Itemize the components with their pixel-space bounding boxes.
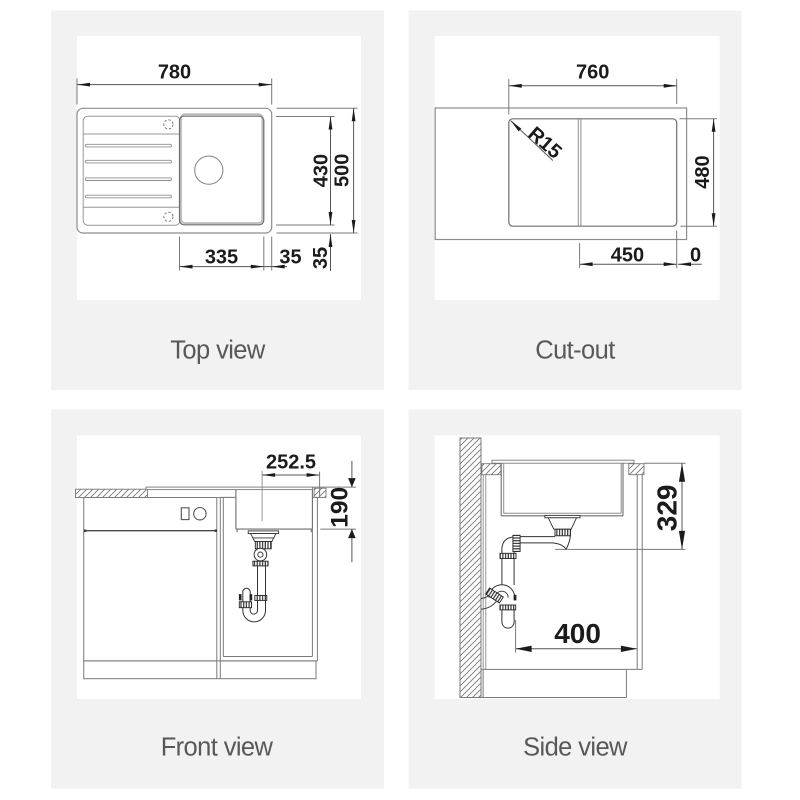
svg-text:760: 760 xyxy=(576,62,609,84)
svg-text:35: 35 xyxy=(279,247,301,269)
svg-text:252.5: 252.5 xyxy=(266,452,316,474)
svg-text:780: 780 xyxy=(158,62,191,84)
svg-text:35: 35 xyxy=(310,247,332,269)
svg-text:0: 0 xyxy=(690,244,701,266)
svg-text:500: 500 xyxy=(332,154,354,187)
svg-text:Front view: Front view xyxy=(161,733,274,761)
svg-text:Cut-out: Cut-out xyxy=(535,337,615,365)
svg-text:335: 335 xyxy=(205,247,238,269)
svg-text:190: 190 xyxy=(327,487,354,528)
svg-text:329: 329 xyxy=(651,485,682,532)
svg-text:Top view: Top view xyxy=(170,337,266,365)
svg-text:480: 480 xyxy=(692,155,714,188)
svg-text:430: 430 xyxy=(310,154,332,187)
svg-text:Side view: Side view xyxy=(523,733,628,761)
svg-text:400: 400 xyxy=(554,618,601,649)
svg-text:450: 450 xyxy=(611,244,644,266)
